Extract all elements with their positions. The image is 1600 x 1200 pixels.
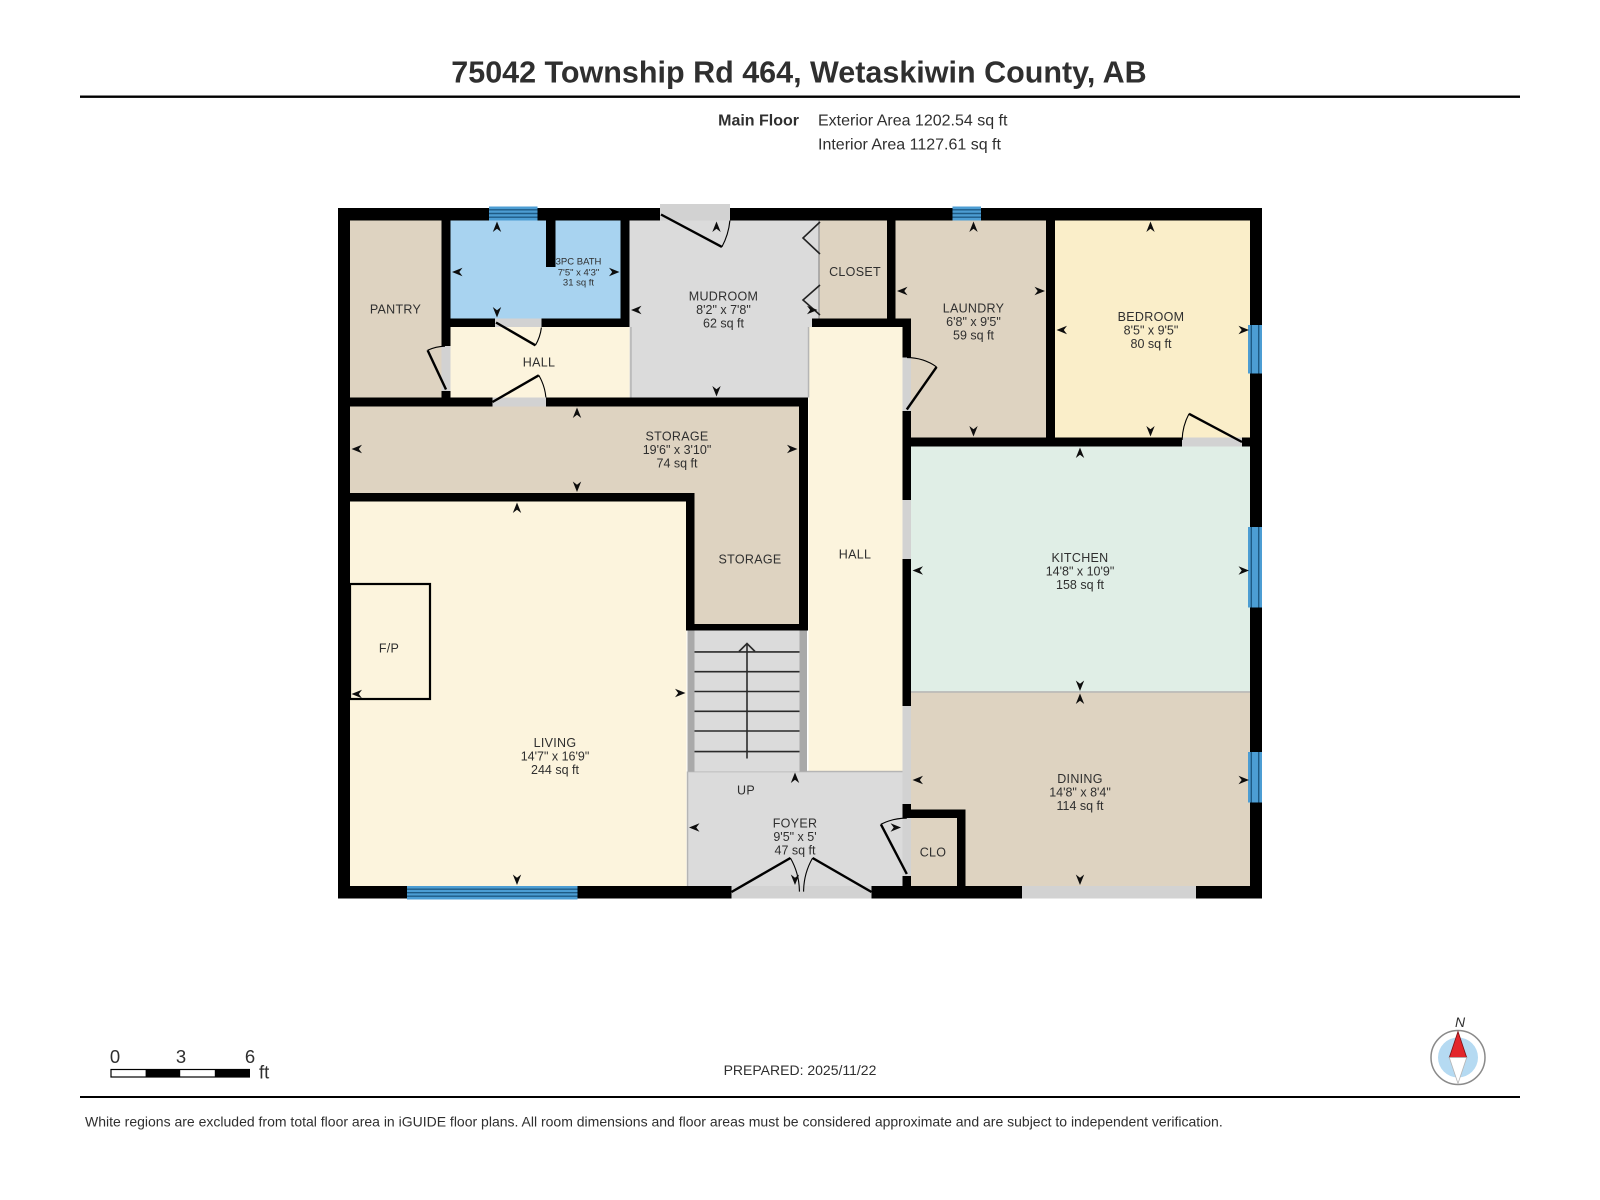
svg-text:74 sq ft: 74 sq ft — [657, 457, 699, 471]
svg-text:9'5" x 5': 9'5" x 5' — [773, 830, 816, 844]
svg-text:114 sq ft: 114 sq ft — [1056, 799, 1104, 813]
svg-text:STORAGE: STORAGE — [646, 430, 709, 444]
svg-text:3: 3 — [176, 1046, 186, 1067]
svg-text:Exterior Area 1202.54 sq ft: Exterior Area 1202.54 sq ft — [818, 113, 1008, 130]
svg-text:80 sq ft: 80 sq ft — [1131, 337, 1173, 351]
svg-text:14'8" x 10'9": 14'8" x 10'9" — [1046, 565, 1115, 579]
svg-text:244 sq ft: 244 sq ft — [531, 763, 579, 777]
svg-text:FOYER: FOYER — [773, 817, 818, 831]
svg-text:CLO: CLO — [920, 846, 947, 860]
svg-text:19'6" x 3'10": 19'6" x 3'10" — [643, 443, 712, 457]
svg-text:14'7" x 16'9": 14'7" x 16'9" — [521, 750, 590, 764]
svg-text:CLOSET: CLOSET — [829, 265, 881, 279]
svg-text:158 sq ft: 158 sq ft — [1056, 578, 1104, 592]
svg-text:6: 6 — [245, 1046, 255, 1067]
svg-text:6'8" x 9'5": 6'8" x 9'5" — [946, 315, 1001, 329]
svg-text:HALL: HALL — [523, 356, 555, 370]
svg-text:ft: ft — [259, 1062, 269, 1083]
svg-text:59 sq ft: 59 sq ft — [953, 329, 995, 343]
svg-text:PANTRY: PANTRY — [370, 303, 422, 317]
svg-text:KITCHEN: KITCHEN — [1052, 551, 1109, 565]
svg-text:STORAGE: STORAGE — [719, 553, 782, 567]
svg-text:8'5" x 9'5": 8'5" x 9'5" — [1124, 324, 1179, 338]
svg-text:DINING: DINING — [1057, 772, 1103, 786]
svg-text:8'2" x 7'8": 8'2" x 7'8" — [696, 303, 751, 317]
svg-text:14'8" x 8'4": 14'8" x 8'4" — [1049, 786, 1111, 800]
svg-text:PREPARED: 2025/11/22: PREPARED: 2025/11/22 — [724, 1062, 877, 1078]
svg-text:BEDROOM: BEDROOM — [1118, 310, 1185, 324]
svg-text:0: 0 — [110, 1046, 120, 1067]
svg-text:LIVING: LIVING — [534, 736, 577, 750]
svg-text:F/P: F/P — [379, 642, 399, 656]
svg-text:47 sq ft: 47 sq ft — [775, 844, 817, 858]
svg-text:31 sq ft: 31 sq ft — [563, 278, 595, 289]
svg-text:HALL: HALL — [839, 548, 871, 562]
svg-text:62 sq ft: 62 sq ft — [703, 317, 745, 331]
svg-text:LAUNDRY: LAUNDRY — [943, 302, 1005, 316]
svg-text:75042 Township Rd 464, Wetaski: 75042 Township Rd 464, Wetaskiwin County… — [451, 56, 1146, 90]
svg-text:MUDROOM: MUDROOM — [689, 290, 758, 304]
svg-text:Interior Area 1127.61 sq ft: Interior Area 1127.61 sq ft — [818, 137, 1001, 154]
svg-text:N: N — [1455, 1014, 1466, 1030]
svg-text:Main Floor: Main Floor — [718, 113, 799, 130]
svg-text:UP: UP — [737, 784, 755, 798]
svg-text:White regions are excluded fro: White regions are excluded from total fl… — [85, 1114, 1223, 1130]
svg-text:3PC BATH: 3PC BATH — [556, 257, 602, 268]
